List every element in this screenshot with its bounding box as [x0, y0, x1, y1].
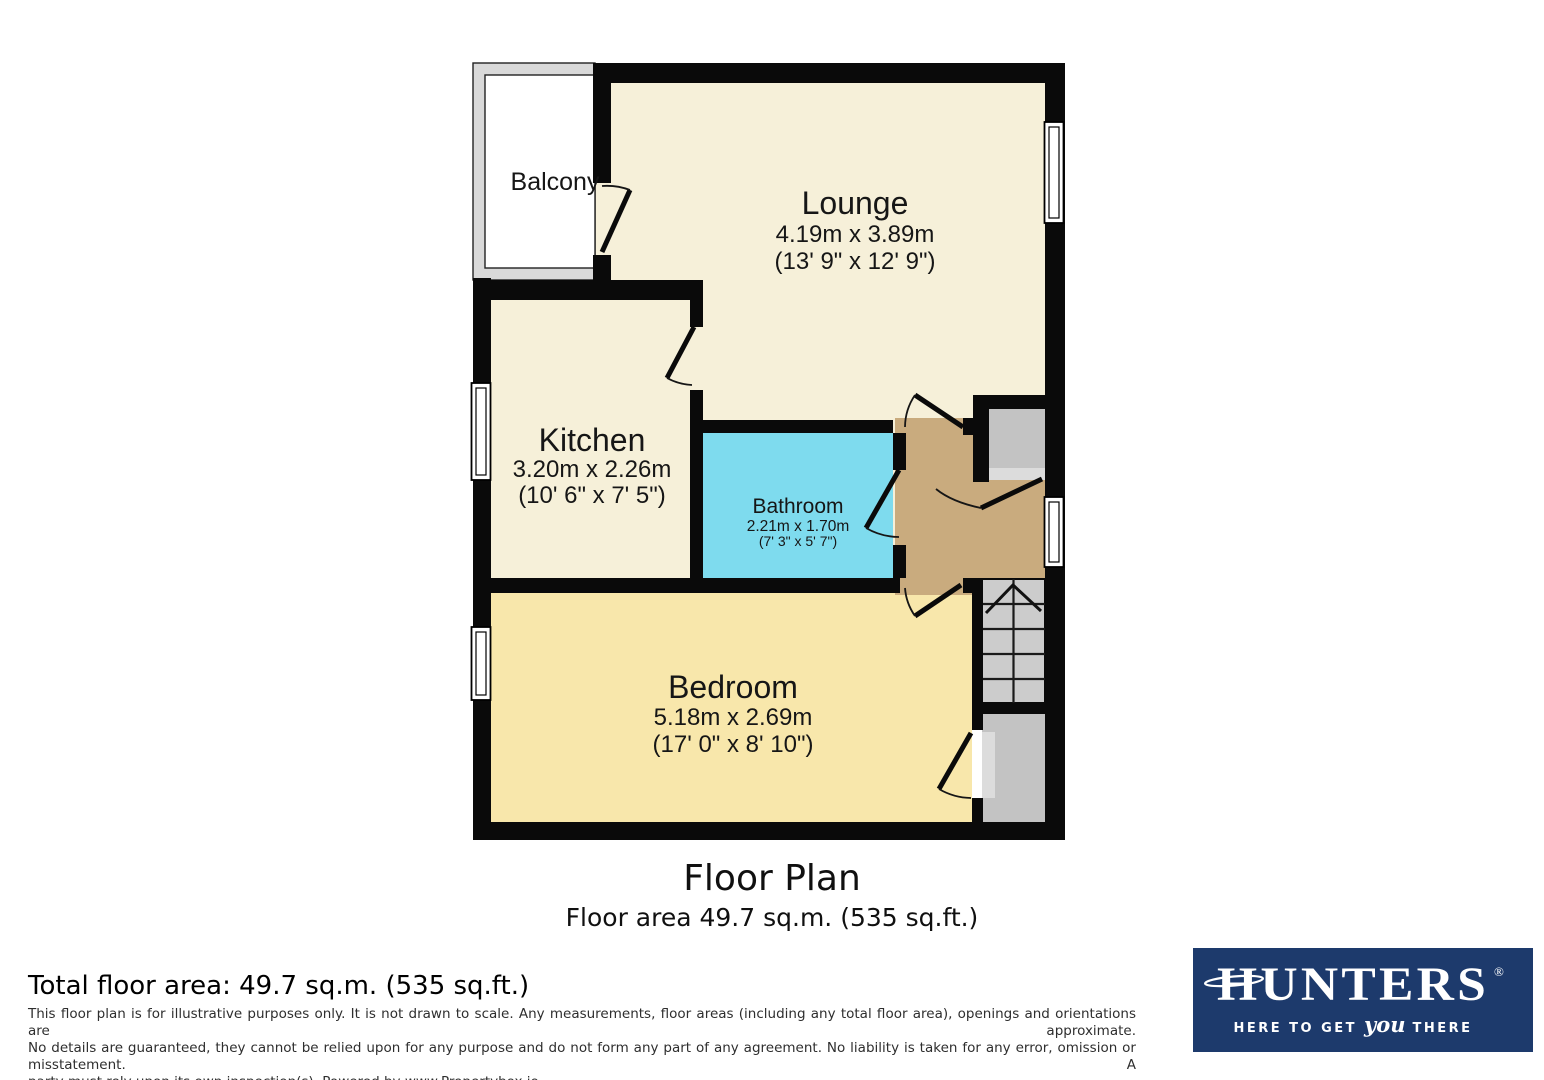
wall-bathroom-east-lower: [893, 545, 906, 578]
tagline-emphasis: you: [1363, 1012, 1405, 1037]
wall-bedroom-north: [473, 578, 900, 593]
wall-kitchen-door-jamb: [690, 300, 703, 327]
bathroom-dims-imperial: (7' 3" x 5' 7"): [759, 533, 837, 549]
disclaimer: This floor plan is for illustrative purp…: [28, 1006, 1136, 1080]
registered-trademark-icon: ®: [1494, 964, 1504, 979]
kitchen-dims-metric: 3.20m x 2.26m: [513, 456, 672, 483]
disclaimer-line-2: No details are guaranteed, they cannot b…: [28, 1040, 1136, 1074]
store-room-top-threshold: [989, 468, 1045, 480]
wall-left: [473, 278, 491, 822]
tagline-post: THERE: [1413, 1021, 1473, 1036]
disclaimer-line-1: This floor plan is for illustrative purp…: [28, 1006, 1136, 1040]
lounge-window: [1045, 122, 1064, 223]
wall-bedroom-east-lower: [972, 798, 983, 822]
floor-area-subtitle: Floor area 49.7 sq.m. (535 sq.ft.): [0, 903, 1544, 932]
lounge-label: Lounge: [802, 185, 909, 221]
kitchen-dims-imperial: (10' 6" x 7' 5"): [518, 482, 666, 509]
wall-under-stairs: [972, 703, 1063, 714]
floor-plan-drawing: Balcony Lounge 4.19m x 3.89m (13' 9" x 1…: [0, 0, 1544, 860]
page-title: Floor Plan: [0, 858, 1544, 899]
bedroom-label: Bedroom: [668, 669, 798, 705]
hunters-logo: HUNTERS ® HERE TO GETyouTHERE: [1193, 948, 1533, 1052]
wall-top: [593, 63, 1063, 83]
stairs: [982, 579, 1045, 703]
disclaimer-line-3: party must rely upon its own inspection(…: [28, 1074, 1136, 1080]
logo-brand-text: HUNTERS: [1217, 958, 1489, 1011]
wall-bottom: [473, 822, 1065, 840]
balcony-label: Balcony: [511, 168, 600, 196]
total-floor-area: Total floor area: 49.7 sq.m. (535 sq.ft.…: [28, 971, 529, 1001]
lounge-dims-metric: 4.19m x 3.89m: [776, 221, 935, 248]
bedroom-dims-imperial: (17' 0" x 8' 10"): [653, 731, 814, 758]
kitchen-label: Kitchen: [539, 422, 646, 458]
tagline-pre: HERE TO GET: [1233, 1021, 1357, 1036]
kitchen-window: [472, 383, 491, 480]
bathroom-label: Bathroom: [752, 495, 843, 518]
bedroom-dims-metric: 5.18m x 2.69m: [654, 704, 813, 731]
hallway-window: [1045, 497, 1064, 567]
floor-plan-page: Balcony Lounge 4.19m x 3.89m (13' 9" x 1…: [0, 0, 1544, 1080]
wall-kitchen-north: [473, 280, 703, 300]
wall-bathroom-east-upper: [893, 433, 906, 470]
wall-balcony-east-upper: [593, 63, 611, 183]
store-room-bottom-threshold: [982, 732, 995, 798]
hallway-floor: [895, 418, 973, 595]
wall-balcony-east-lower: [593, 255, 611, 283]
wall-kitchen-east: [690, 390, 703, 593]
wall-lounge-south: [703, 420, 893, 433]
wall-store-top-west: [973, 395, 989, 482]
lounge-dims-imperial: (13' 9" x 12' 9"): [775, 248, 936, 275]
bedroom-window: [472, 627, 491, 700]
